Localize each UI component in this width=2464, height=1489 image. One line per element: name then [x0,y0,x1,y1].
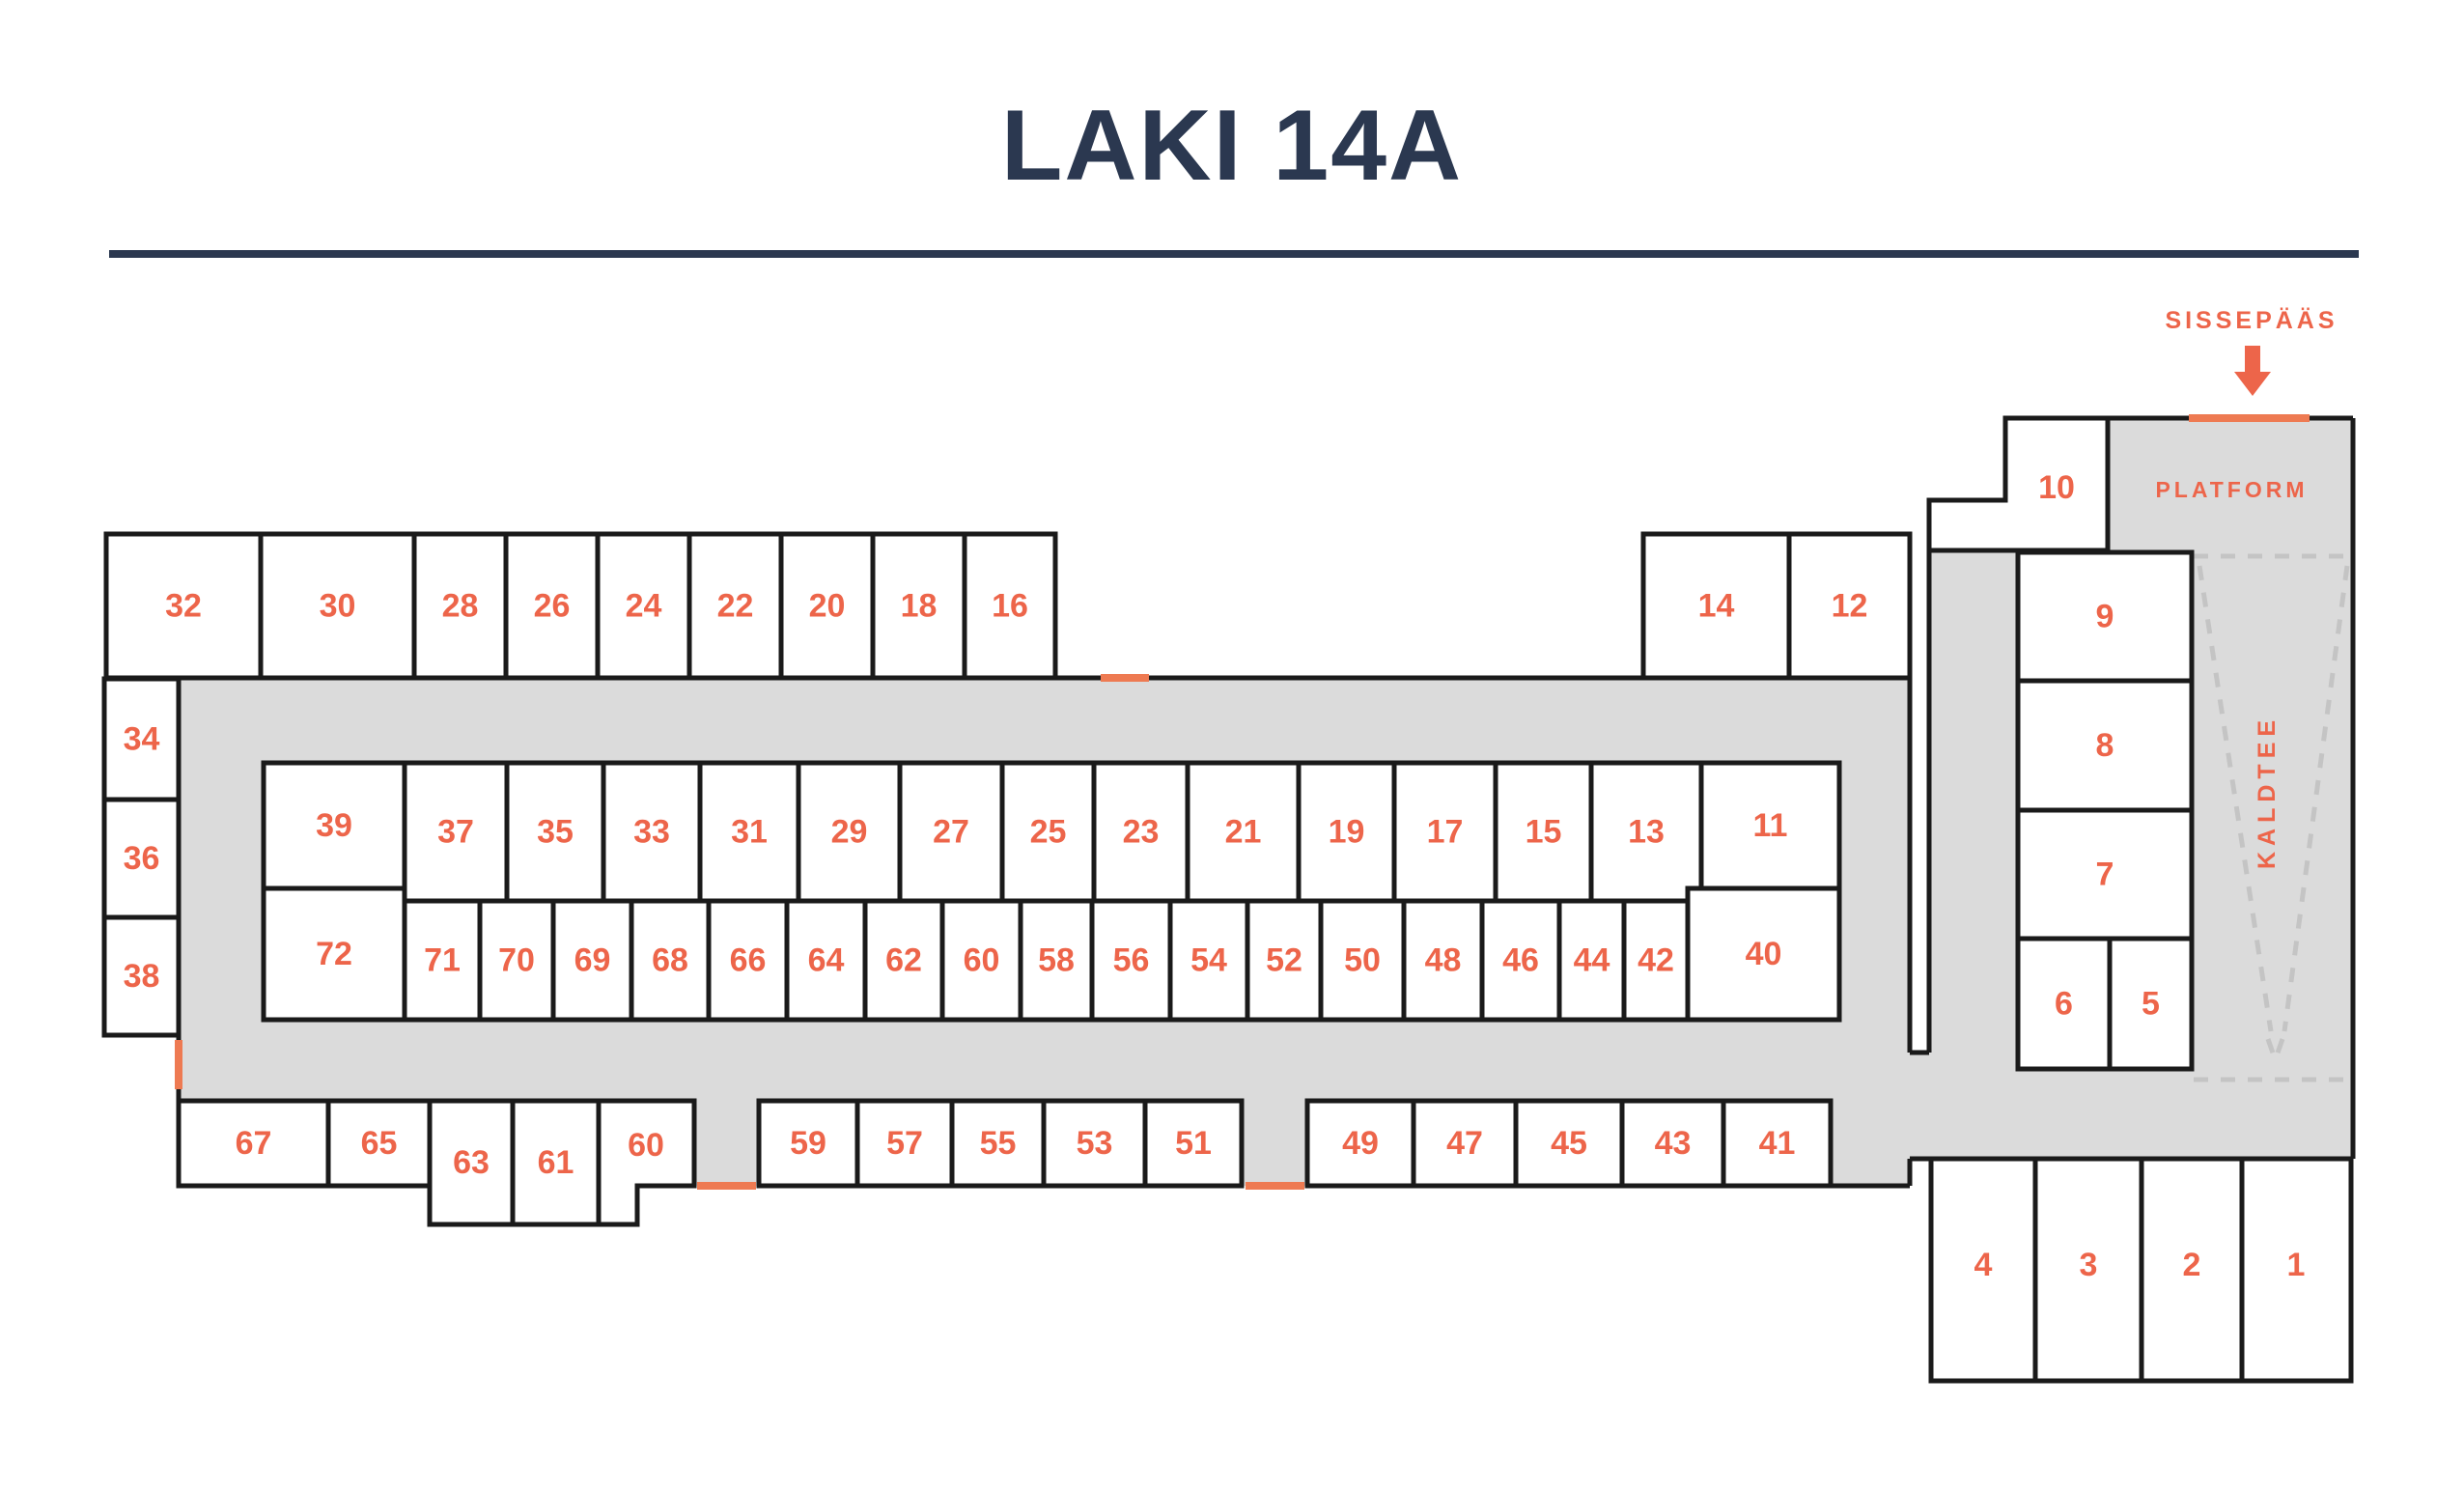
unit-label: 70 [498,942,535,979]
unit-label: 41 [1759,1125,1796,1162]
unit-label: 67 [236,1125,272,1162]
unit-label: 66 [730,942,767,979]
unit-label: 21 [1225,814,1262,851]
unit-label: 59 [790,1125,826,1162]
unit-label: 60 [628,1127,664,1164]
unit-label: 17 [1427,814,1464,851]
unit-label: 33 [633,814,670,851]
unit-label: 42 [1638,942,1674,979]
unit-label: 64 [808,942,845,979]
unit-label: 69 [574,942,611,979]
unit-label: 30 [320,588,356,625]
unit-label: 53 [1077,1125,1113,1162]
unit-label: 60 [964,942,1000,979]
unit-label: 62 [885,942,922,979]
unit-label: 49 [1342,1125,1379,1162]
unit-label: 61 [538,1144,574,1181]
unit-label: 46 [1502,942,1539,979]
unit-label: 27 [933,814,969,851]
unit-label: 23 [1123,814,1160,851]
unit-label: 13 [1628,814,1665,851]
corridor-area [1831,1101,1910,1186]
unit-label: 5 [2142,986,2160,1023]
corridor-area [1839,678,1910,1101]
unit-label: 72 [316,936,352,972]
unit-label: 25 [1030,814,1067,851]
unit-label: 57 [886,1125,923,1162]
unit-label: 35 [537,814,574,851]
unit-label: 7 [2096,857,2114,893]
unit-label: 44 [1574,942,1610,979]
corridor-area [179,678,1910,763]
unit-label: 40 [1746,936,1782,972]
unit-label: 10 [2038,469,2075,506]
unit-label: 22 [717,588,754,625]
platform-label: PLATFORM [2111,477,2353,503]
ramp-label: KALDTEE [2254,676,2296,908]
unit-label: 39 [316,807,352,844]
unit-box [1929,418,2108,550]
unit-label: 31 [731,814,768,851]
unit-label: 37 [437,814,474,851]
unit-label: 58 [1038,942,1075,979]
unit-label: 28 [442,588,479,625]
unit-label: 20 [809,588,846,625]
unit-label: 19 [1329,814,1365,851]
unit-label: 56 [1113,942,1150,979]
unit-label: 63 [453,1144,490,1181]
unit-label: 3 [2080,1247,2098,1283]
floor-plan: 3230282624222018161412343638393735333129… [0,0,2464,1489]
unit-label: 29 [831,814,868,851]
unit-label: 38 [124,958,160,995]
unit-label: 54 [1190,942,1227,979]
unit-label: 52 [1266,942,1302,979]
unit-label: 55 [980,1125,1017,1162]
unit-label: 4 [1974,1247,1993,1283]
unit-label: 32 [165,588,202,625]
unit-label: 14 [1698,588,1735,625]
unit-label: 45 [1551,1125,1587,1162]
unit-label: 48 [1425,942,1462,979]
unit-label: 9 [2096,599,2114,635]
unit-label: 26 [534,588,571,625]
unit-label: 68 [652,942,688,979]
unit-label: 50 [1344,942,1381,979]
unit-label: 1 [2287,1247,2306,1283]
unit-label: 65 [361,1125,398,1162]
corridor-area [1242,1101,1307,1186]
unit-label: 2 [2183,1247,2201,1283]
corridor-area [694,1101,759,1186]
unit-label: 36 [124,840,160,877]
unit-label: 6 [2055,986,2073,1023]
unit-label: 15 [1526,814,1562,851]
unit-label: 34 [124,721,160,758]
unit-label: 43 [1655,1125,1692,1162]
unit-label: 71 [424,942,461,979]
unit-label: 12 [1832,588,1868,625]
unit-label: 18 [901,588,938,625]
unit-label: 24 [626,588,662,625]
unit-label: 8 [2096,727,2114,764]
unit-label: 16 [992,588,1028,625]
unit-label: 47 [1446,1125,1483,1162]
corridor-area [179,1020,1839,1101]
unit-label: 51 [1175,1125,1212,1162]
unit-label: 11 [1753,807,1788,844]
